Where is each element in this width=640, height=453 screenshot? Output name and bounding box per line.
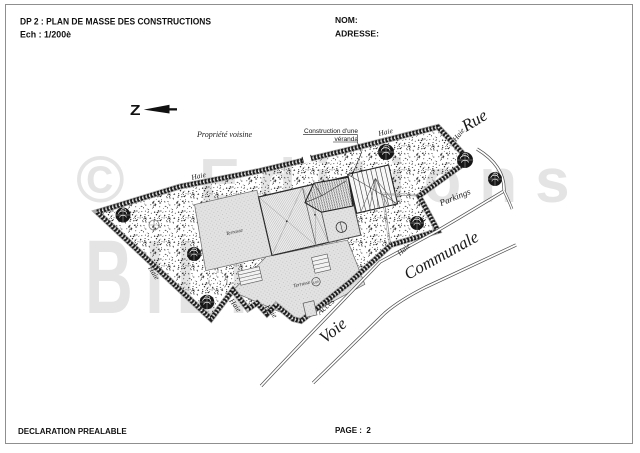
svg-text:Construction d'une: Construction d'une — [304, 128, 358, 135]
svg-text:PAGE : 2: PAGE : 2 — [335, 426, 371, 435]
svg-text:Propriété voisine: Propriété voisine — [196, 130, 252, 139]
svg-text:Z: Z — [130, 103, 141, 119]
svg-text:DP 2 : PLAN DE MASSE DES CONST: DP 2 : PLAN DE MASSE DES CONSTRUCTIONS — [20, 17, 211, 27]
svg-text:ADRESSE:: ADRESSE: — [335, 29, 379, 39]
svg-text:NOM:: NOM: — [335, 15, 358, 25]
svg-text:Ech : 1/200è: Ech : 1/200è — [20, 30, 71, 40]
svg-text:DECLARATION PREALABLE: DECLARATION PREALABLE — [18, 427, 127, 436]
